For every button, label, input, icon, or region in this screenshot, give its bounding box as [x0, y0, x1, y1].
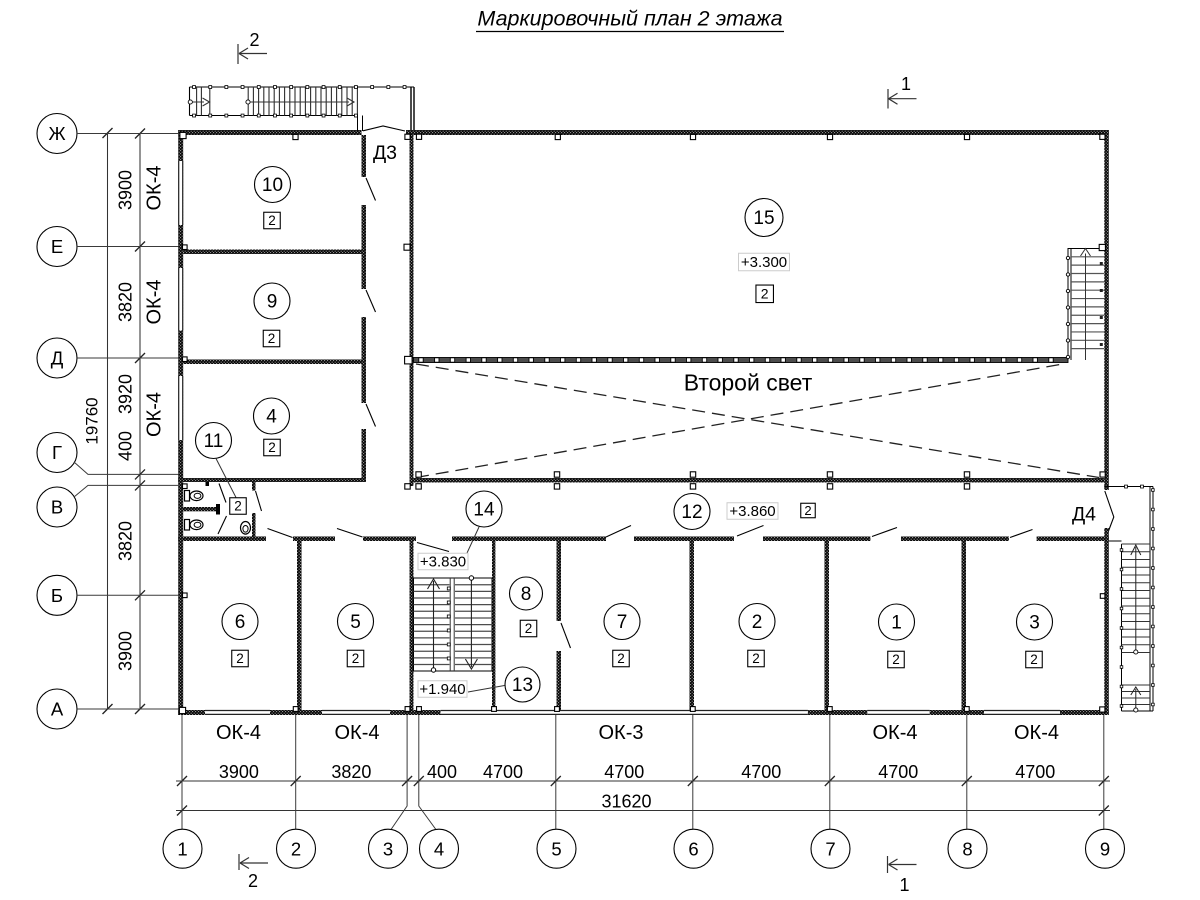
svg-text:3900: 3900	[116, 631, 136, 671]
svg-text:4700: 4700	[604, 762, 644, 782]
svg-text:2: 2	[804, 503, 811, 518]
svg-text:8: 8	[521, 584, 532, 605]
svg-text:ОК-4: ОК-4	[216, 722, 261, 744]
svg-text:ОК-4: ОК-4	[873, 722, 918, 744]
svg-text:Второй свет: Второй свет	[684, 370, 813, 396]
svg-text:2: 2	[234, 499, 242, 514]
svg-text:Ж: Ж	[48, 123, 65, 144]
svg-text:Д: Д	[51, 348, 64, 369]
svg-text:Маркировочный план 2 этажа: Маркировочный план 2 этажа	[477, 7, 782, 31]
svg-text:4: 4	[434, 838, 444, 859]
svg-text:15: 15	[753, 208, 774, 229]
svg-text:4700: 4700	[483, 762, 523, 782]
svg-text:5: 5	[350, 612, 361, 633]
svg-text:ОК-4: ОК-4	[144, 166, 166, 211]
svg-text:3: 3	[1029, 613, 1040, 634]
svg-text:2: 2	[752, 651, 760, 666]
svg-text:3820: 3820	[116, 521, 136, 561]
svg-text:Д3: Д3	[373, 142, 397, 164]
svg-text:2: 2	[249, 30, 259, 50]
svg-text:2: 2	[761, 286, 769, 302]
svg-text:1: 1	[177, 838, 187, 859]
svg-text:+3.300: +3.300	[741, 254, 787, 271]
svg-text:3: 3	[383, 838, 393, 859]
svg-text:Б: Б	[51, 585, 63, 606]
svg-text:2: 2	[248, 871, 258, 891]
svg-text:ОК-4: ОК-4	[144, 280, 166, 325]
svg-text:2: 2	[291, 838, 301, 859]
svg-text:10: 10	[262, 175, 283, 196]
svg-text:2: 2	[268, 440, 276, 455]
svg-text:2: 2	[617, 651, 625, 666]
svg-text:А: А	[51, 699, 64, 720]
svg-text:19760: 19760	[83, 397, 102, 444]
svg-text:Г: Г	[52, 442, 62, 463]
svg-text:6: 6	[688, 838, 698, 859]
svg-text:14: 14	[473, 500, 495, 521]
svg-text:7: 7	[825, 838, 835, 859]
svg-text:3900: 3900	[219, 762, 259, 782]
svg-text:11: 11	[204, 431, 224, 452]
svg-text:2: 2	[268, 213, 276, 228]
svg-text:4700: 4700	[878, 762, 918, 782]
svg-text:2: 2	[525, 621, 533, 636]
svg-text:Д4: Д4	[1072, 504, 1096, 526]
svg-text:31620: 31620	[601, 792, 651, 812]
svg-text:9: 9	[267, 292, 278, 313]
svg-text:6: 6	[235, 612, 246, 633]
svg-text:2: 2	[268, 331, 276, 346]
svg-text:1: 1	[899, 875, 909, 895]
svg-text:ОК-4: ОК-4	[144, 392, 166, 437]
svg-text:12: 12	[681, 502, 702, 523]
svg-text:4: 4	[266, 407, 277, 428]
svg-text:13: 13	[512, 675, 533, 696]
svg-text:4700: 4700	[741, 762, 781, 782]
svg-text:2: 2	[752, 612, 763, 633]
svg-text:ОК-4: ОК-4	[335, 722, 380, 744]
svg-text:+1.940: +1.940	[419, 681, 465, 698]
svg-text:+3.860: +3.860	[729, 503, 775, 520]
svg-text:2: 2	[236, 651, 244, 666]
svg-text:7: 7	[617, 612, 628, 633]
svg-text:2: 2	[352, 651, 360, 666]
svg-text:3900: 3900	[116, 170, 136, 210]
svg-text:5: 5	[551, 838, 561, 859]
svg-text:Е: Е	[51, 236, 63, 257]
svg-text:2: 2	[1030, 652, 1038, 667]
svg-text:+3.830: +3.830	[420, 553, 466, 570]
svg-text:2: 2	[892, 652, 900, 667]
svg-text:ОК-3: ОК-3	[599, 722, 644, 744]
svg-text:8: 8	[962, 838, 972, 859]
svg-text:1: 1	[891, 613, 902, 634]
svg-text:3820: 3820	[331, 762, 371, 782]
svg-text:400: 400	[427, 762, 457, 782]
svg-text:1: 1	[901, 74, 911, 94]
svg-text:3920: 3920	[116, 374, 136, 414]
svg-text:В: В	[51, 497, 63, 518]
svg-text:4700: 4700	[1015, 762, 1055, 782]
svg-text:3820: 3820	[116, 282, 136, 322]
svg-text:400: 400	[116, 431, 136, 461]
svg-text:ОК-4: ОК-4	[1014, 722, 1059, 744]
svg-text:9: 9	[1100, 838, 1110, 859]
